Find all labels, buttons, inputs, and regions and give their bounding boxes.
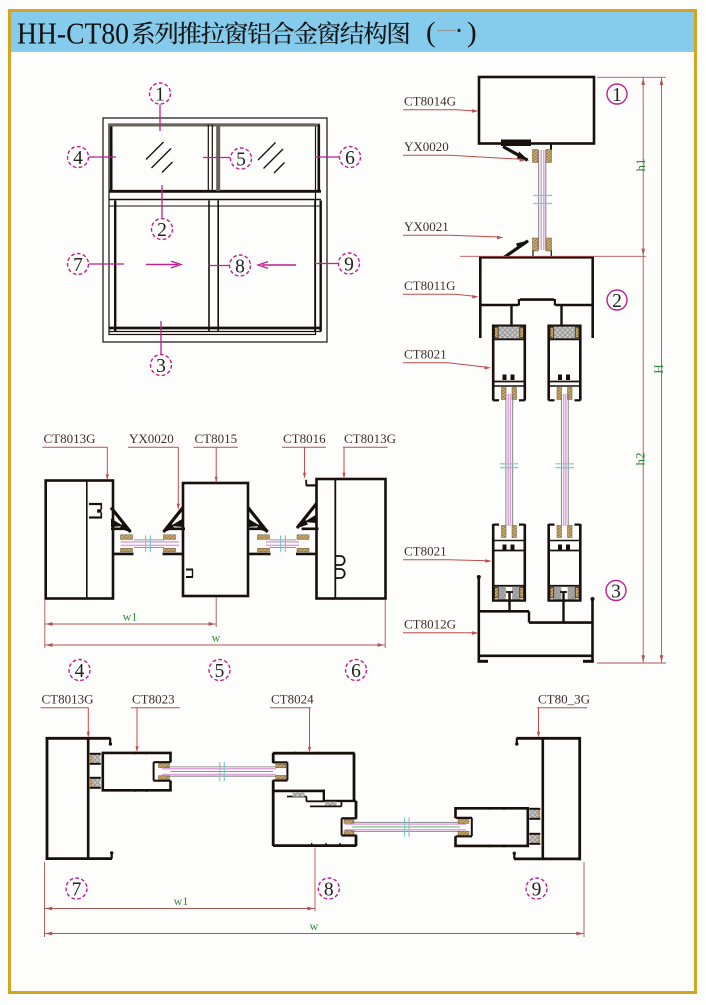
- svg-text:9: 9: [344, 255, 354, 276]
- svg-text:6: 6: [345, 148, 355, 169]
- svg-text:h2: h2: [632, 453, 647, 466]
- svg-text:5: 5: [236, 150, 246, 171]
- svg-text:1: 1: [155, 85, 165, 106]
- svg-text:2: 2: [612, 291, 622, 312]
- svg-text:YX0021: YX0021: [404, 219, 449, 234]
- svg-text:4: 4: [75, 661, 85, 682]
- svg-text:3: 3: [611, 582, 621, 603]
- svg-text:3: 3: [156, 356, 166, 377]
- svg-text:CT8024: CT8024: [271, 692, 314, 707]
- svg-text:CT8013G: CT8013G: [44, 431, 96, 446]
- svg-text:(: (: [426, 17, 436, 49]
- svg-text:): ): [467, 17, 477, 49]
- svg-text:5: 5: [215, 661, 225, 682]
- svg-text:w1: w1: [123, 610, 138, 624]
- svg-text:7: 7: [73, 255, 83, 276]
- svg-text:1: 1: [612, 85, 622, 106]
- svg-text:CT8021: CT8021: [404, 347, 447, 362]
- svg-text:CT8013G: CT8013G: [344, 431, 396, 446]
- svg-text:2: 2: [157, 220, 167, 241]
- svg-text:w1: w1: [174, 894, 189, 908]
- svg-text:HH-CT80: HH-CT80: [17, 16, 129, 51]
- svg-text:CT8013G: CT8013G: [42, 692, 94, 707]
- svg-text:CT80_3G: CT80_3G: [538, 692, 590, 707]
- svg-text:CT8011G: CT8011G: [404, 278, 456, 293]
- svg-text:7: 7: [72, 880, 82, 901]
- svg-text:9: 9: [532, 880, 542, 901]
- svg-text:YX0020: YX0020: [129, 431, 174, 446]
- svg-text:CT8023: CT8023: [132, 692, 175, 707]
- svg-text:CT8014G: CT8014G: [404, 94, 456, 109]
- svg-text:CT8015: CT8015: [195, 431, 238, 446]
- svg-text:CT8021: CT8021: [404, 544, 447, 559]
- svg-text:w: w: [212, 631, 221, 645]
- svg-text:CT8012G: CT8012G: [404, 617, 456, 632]
- svg-text:w: w: [310, 919, 319, 933]
- svg-text:H: H: [651, 364, 666, 373]
- svg-text:4: 4: [73, 148, 83, 169]
- svg-text:8: 8: [324, 880, 334, 901]
- svg-text:8: 8: [235, 257, 245, 278]
- svg-text:YX0020: YX0020: [404, 139, 449, 154]
- svg-text:h1: h1: [633, 159, 648, 172]
- svg-text:6: 6: [351, 661, 361, 682]
- svg-text:CT8016: CT8016: [283, 431, 326, 446]
